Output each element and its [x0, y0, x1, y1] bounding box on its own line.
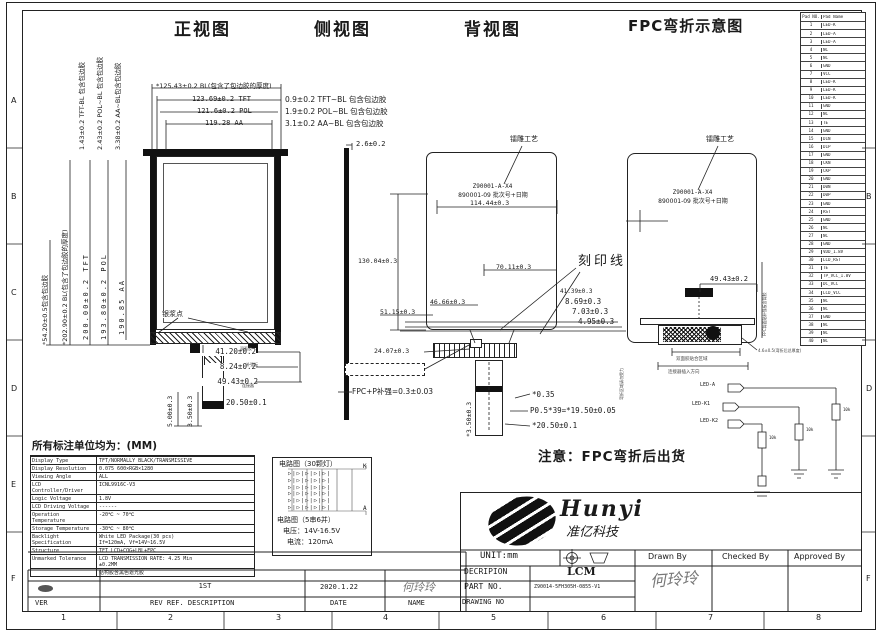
linework [0, 0, 882, 632]
drawing-sheet: A B C D E F B D F 1 2 3 4 5 6 7 8 正视图 侧视… [0, 0, 882, 632]
